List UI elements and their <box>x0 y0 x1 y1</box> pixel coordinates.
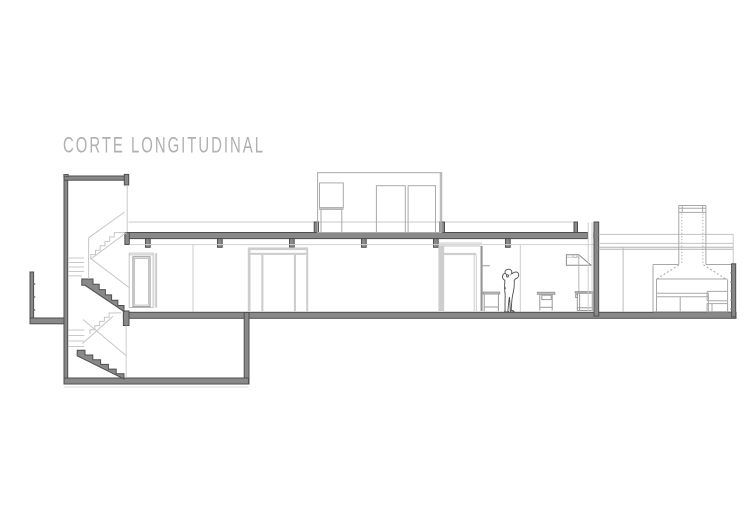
svg-text:CORTE LONGITUDINAL: CORTE LONGITUDINAL <box>63 133 265 158</box>
